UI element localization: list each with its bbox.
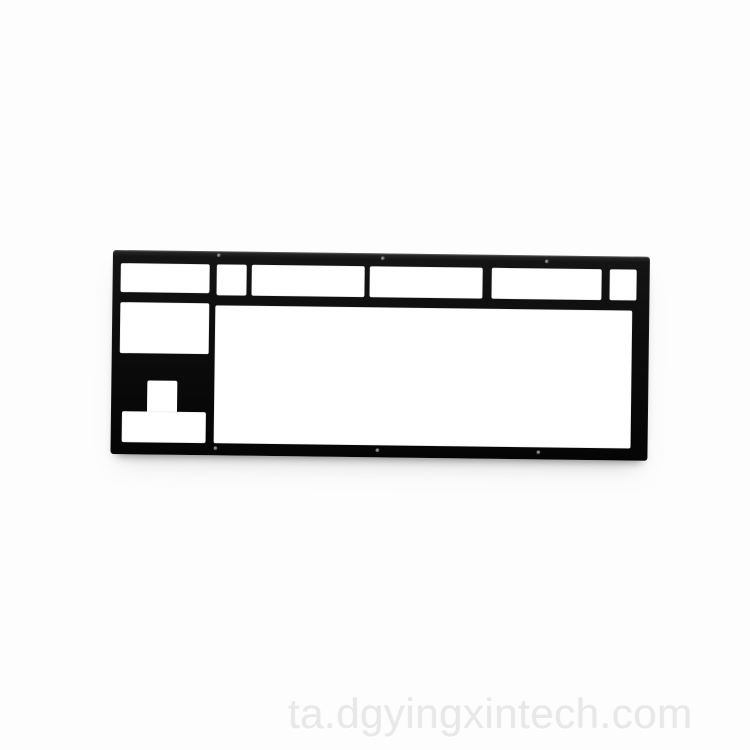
product-photo: ta.dgyingxintech.com — [0, 0, 750, 750]
cutout-top-square-right — [609, 269, 636, 300]
screw-hole — [217, 253, 221, 257]
screw-hole — [213, 446, 217, 450]
screw-hole — [536, 450, 540, 454]
cutout-top-square-left — [216, 264, 246, 295]
watermark-text: ta.dgyingxintech.com — [288, 691, 693, 737]
screw-hole — [375, 448, 379, 452]
cutout-top-wide-3 — [491, 268, 601, 300]
screw-hole — [545, 259, 549, 263]
cutout-main-opening — [214, 305, 633, 448]
cutout-left-middle — [120, 302, 210, 354]
keyboard-plate — [110, 250, 650, 461]
cutout-top-wide-2 — [369, 266, 482, 298]
cutout-left-top — [120, 263, 209, 293]
cutout-top-wide-1 — [251, 265, 364, 297]
cutout-left-step-base — [122, 411, 206, 443]
cutout-left-step-stem — [147, 380, 177, 413]
screw-hole — [381, 256, 385, 260]
